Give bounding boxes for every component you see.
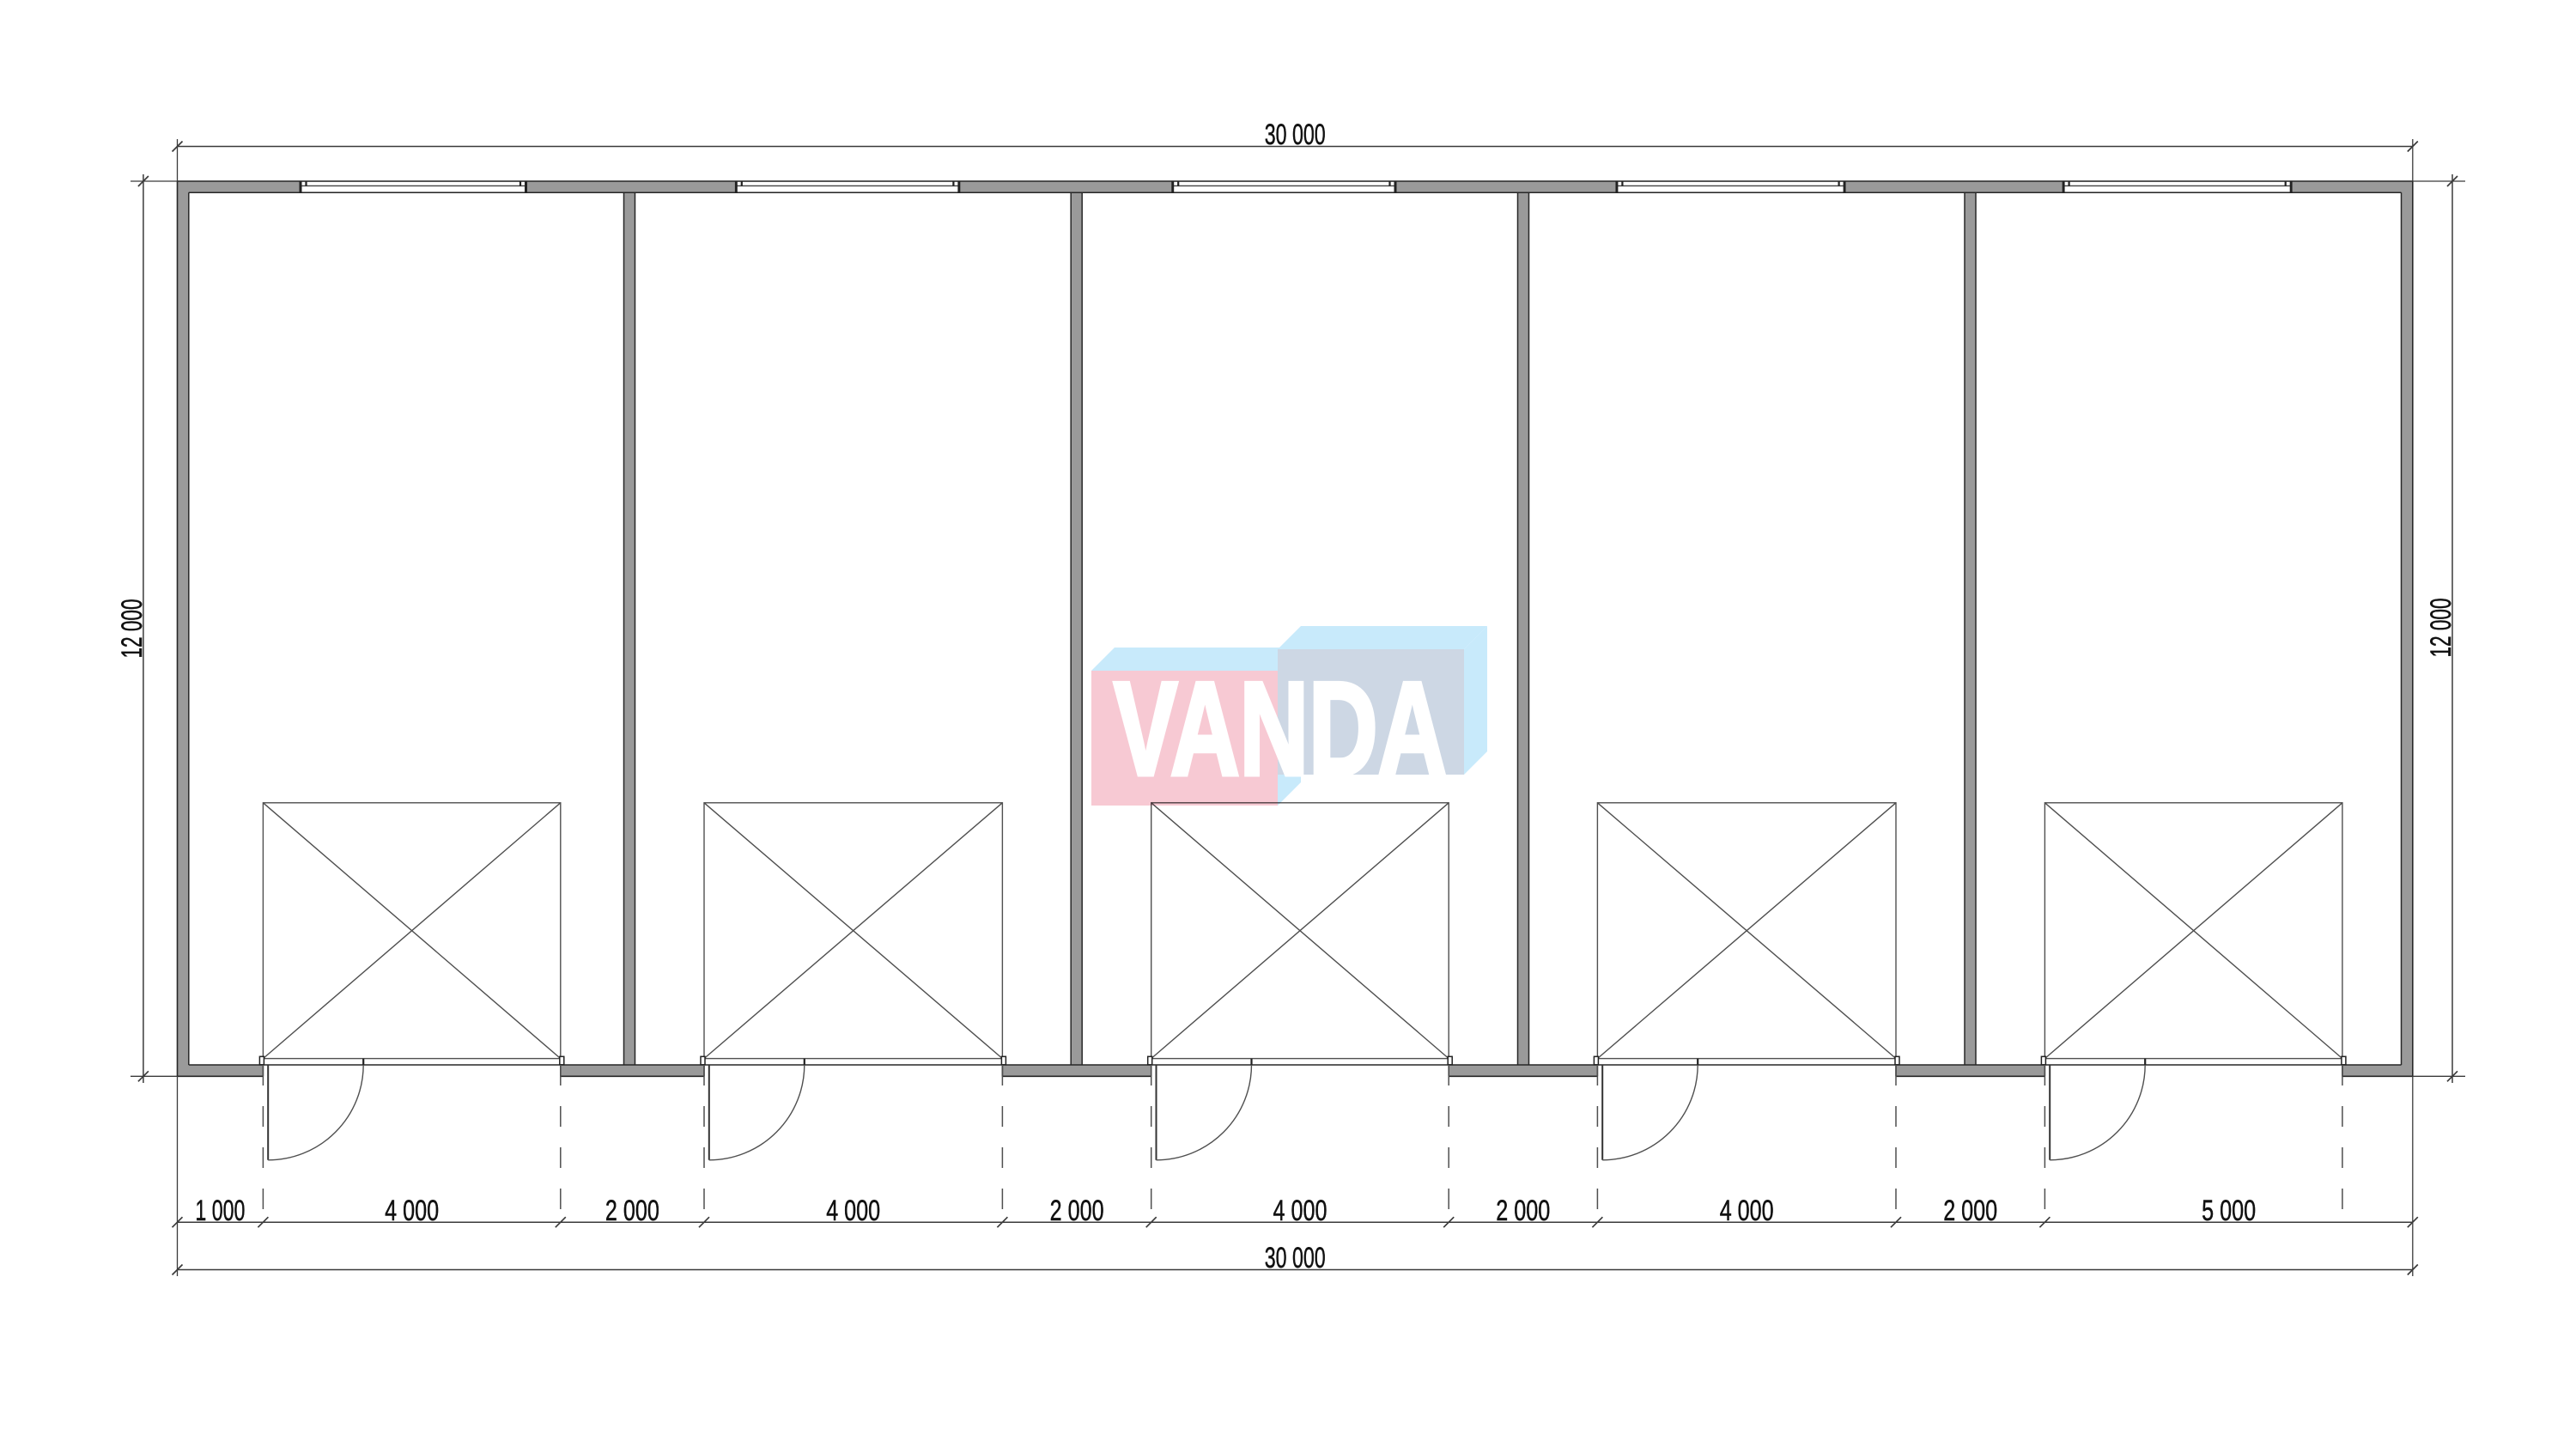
svg-text:4 000: 4 000 — [1720, 1195, 1774, 1227]
svg-text:2 000: 2 000 — [1050, 1195, 1104, 1227]
svg-text:VANDA: VANDA — [1114, 654, 1447, 803]
svg-text:2 000: 2 000 — [605, 1195, 659, 1227]
svg-text:5 000: 5 000 — [2202, 1195, 2256, 1227]
svg-text:2 000: 2 000 — [1496, 1195, 1550, 1227]
svg-text:4 000: 4 000 — [385, 1195, 439, 1227]
svg-text:12 000: 12 000 — [2425, 599, 2458, 658]
svg-text:12 000: 12 000 — [116, 599, 149, 659]
svg-text:1 000: 1 000 — [195, 1195, 245, 1227]
svg-text:30 000: 30 000 — [1265, 119, 1326, 151]
svg-text:4 000: 4 000 — [1273, 1195, 1327, 1227]
svg-text:4 000: 4 000 — [826, 1195, 880, 1227]
svg-text:2 000: 2 000 — [1943, 1195, 1997, 1227]
svg-text:30 000: 30 000 — [1265, 1242, 1326, 1274]
